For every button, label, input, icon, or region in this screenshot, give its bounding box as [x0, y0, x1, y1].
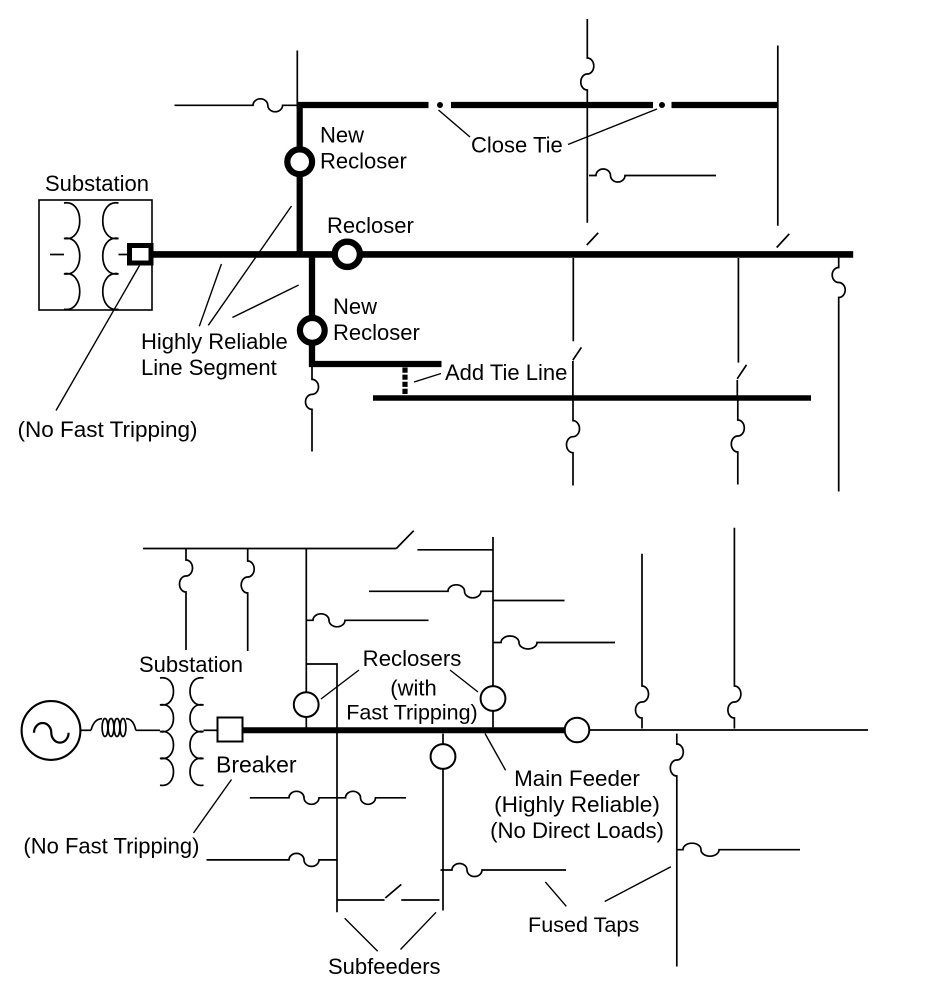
svg-text:(No Direct Loads): (No Direct Loads)	[490, 818, 664, 843]
svg-text:Highly Reliable: Highly Reliable	[141, 329, 288, 354]
svg-text:(No Fast Tripping): (No Fast Tripping)	[18, 417, 198, 442]
svg-text:(Highly Reliable): (Highly Reliable)	[494, 792, 660, 817]
svg-text:Line Segment: Line Segment	[141, 355, 277, 380]
svg-text:Main Feeder: Main Feeder	[514, 766, 640, 791]
svg-text:Recloser: Recloser	[320, 149, 407, 174]
svg-text:(No Fast Tripping): (No Fast Tripping)	[23, 833, 199, 858]
svg-text:Subfeeders: Subfeeders	[328, 954, 441, 979]
svg-text:Recloser: Recloser	[327, 213, 414, 238]
svg-text:New: New	[320, 123, 364, 148]
svg-text:New: New	[333, 294, 377, 319]
svg-text:Add Tie Line: Add Tie Line	[445, 360, 567, 385]
svg-text:Fast Tripping): Fast Tripping)	[346, 701, 477, 725]
svg-text:Reclosers: Reclosers	[363, 646, 462, 671]
svg-text:Substation: Substation	[139, 652, 243, 677]
svg-text:Fused Taps: Fused Taps	[528, 912, 639, 937]
svg-text:Recloser: Recloser	[333, 320, 420, 345]
svg-text:Breaker: Breaker	[216, 752, 297, 778]
svg-text:(with: (with	[390, 675, 436, 700]
svg-text:Close Tie: Close Tie	[471, 133, 563, 158]
svg-text:Substation: Substation	[45, 171, 149, 196]
